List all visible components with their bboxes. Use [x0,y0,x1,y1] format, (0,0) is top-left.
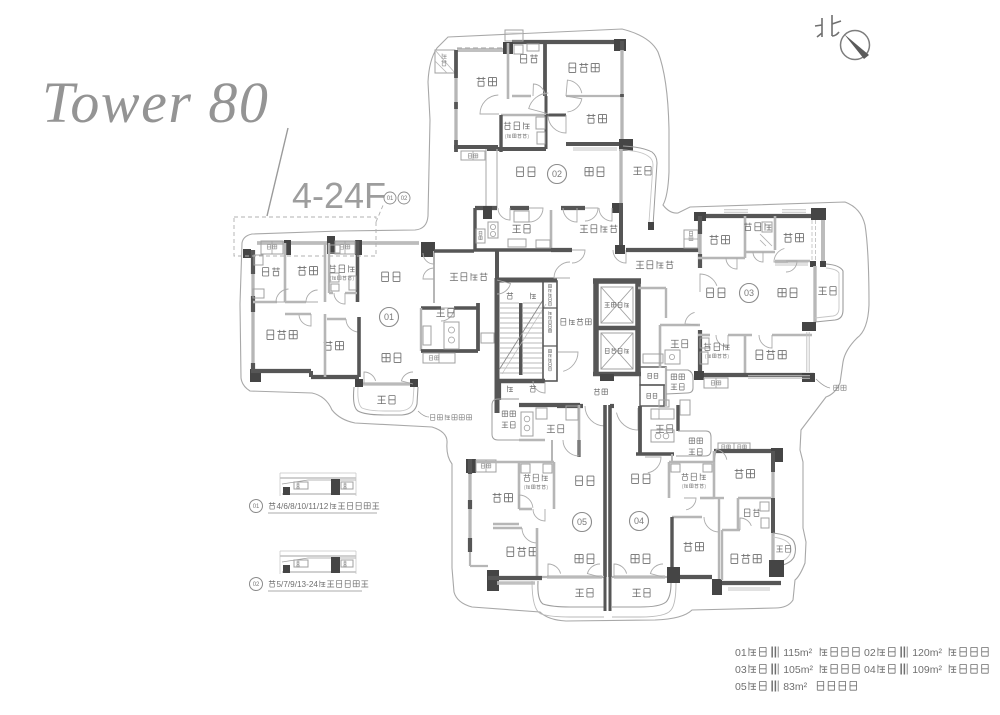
svg-text:4/6/8/10/11/12: 4/6/8/10/11/12 [277,502,329,511]
svg-text:05: 05 [577,517,587,527]
svg-text:02: 02 [552,169,562,179]
svg-text:01: 01 [735,647,747,659]
svg-text:01: 01 [384,312,394,322]
svg-text:Tower 80: Tower 80 [42,70,269,135]
svg-text:03: 03 [735,664,747,676]
svg-text:02: 02 [401,196,408,202]
svg-text:01: 01 [253,504,260,510]
svg-text:105m²: 105m² [783,664,813,676]
svg-text:109m²: 109m² [912,664,942,676]
svg-text:5/7/9/13-24: 5/7/9/13-24 [277,580,319,589]
svg-text:4-24F: 4-24F [292,175,386,216]
svg-text:03: 03 [744,288,754,298]
svg-text:04: 04 [634,516,644,526]
svg-text:120m²: 120m² [912,647,942,659]
svg-text:83m²: 83m² [783,681,807,693]
svg-text:02: 02 [253,582,260,588]
svg-text:05: 05 [735,681,747,693]
svg-text:02: 02 [864,647,876,659]
svg-text:04: 04 [864,664,876,676]
svg-text:01: 01 [387,196,394,202]
svg-text:115m²: 115m² [783,647,812,659]
